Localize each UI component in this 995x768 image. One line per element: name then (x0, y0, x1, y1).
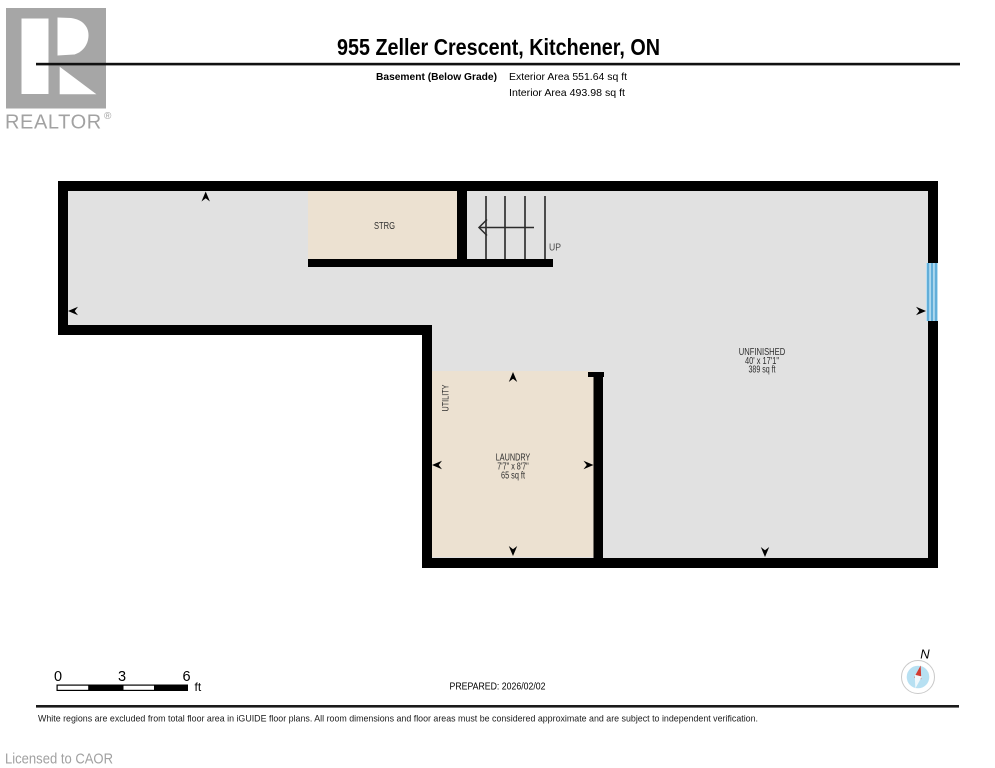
svg-text:Basement (Below Grade): Basement (Below Grade) (376, 71, 497, 83)
svg-text:STRG: STRG (374, 221, 395, 232)
svg-text:UTILITY: UTILITY (441, 384, 452, 411)
svg-text:N: N (920, 647, 930, 662)
svg-text:Exterior Area 551.64 sq ft: Exterior Area 551.64 sq ft (509, 71, 627, 83)
svg-text:6: 6 (182, 669, 190, 685)
svg-text:65 sq ft: 65 sq ft (501, 471, 525, 482)
svg-text:White regions are excluded fro: White regions are excluded from total fl… (38, 714, 758, 725)
svg-text:955 Zeller Crescent, Kitchener: 955 Zeller Crescent, Kitchener, ON (337, 34, 660, 60)
svg-text:Licensed to CAOR: Licensed to CAOR (5, 752, 113, 768)
svg-text:389 sq ft: 389 sq ft (749, 365, 776, 376)
svg-text:UP: UP (549, 243, 561, 254)
svg-text:®: ® (104, 111, 112, 122)
svg-text:0: 0 (54, 669, 62, 685)
svg-text:3: 3 (118, 669, 126, 685)
svg-text:PREPARED: 2026/02/02: PREPARED: 2026/02/02 (450, 682, 546, 693)
svg-text:REALTOR: REALTOR (5, 112, 102, 134)
svg-text:ft: ft (195, 680, 202, 694)
svg-text:Interior Area 493.98 sq ft: Interior Area 493.98 sq ft (509, 87, 625, 99)
